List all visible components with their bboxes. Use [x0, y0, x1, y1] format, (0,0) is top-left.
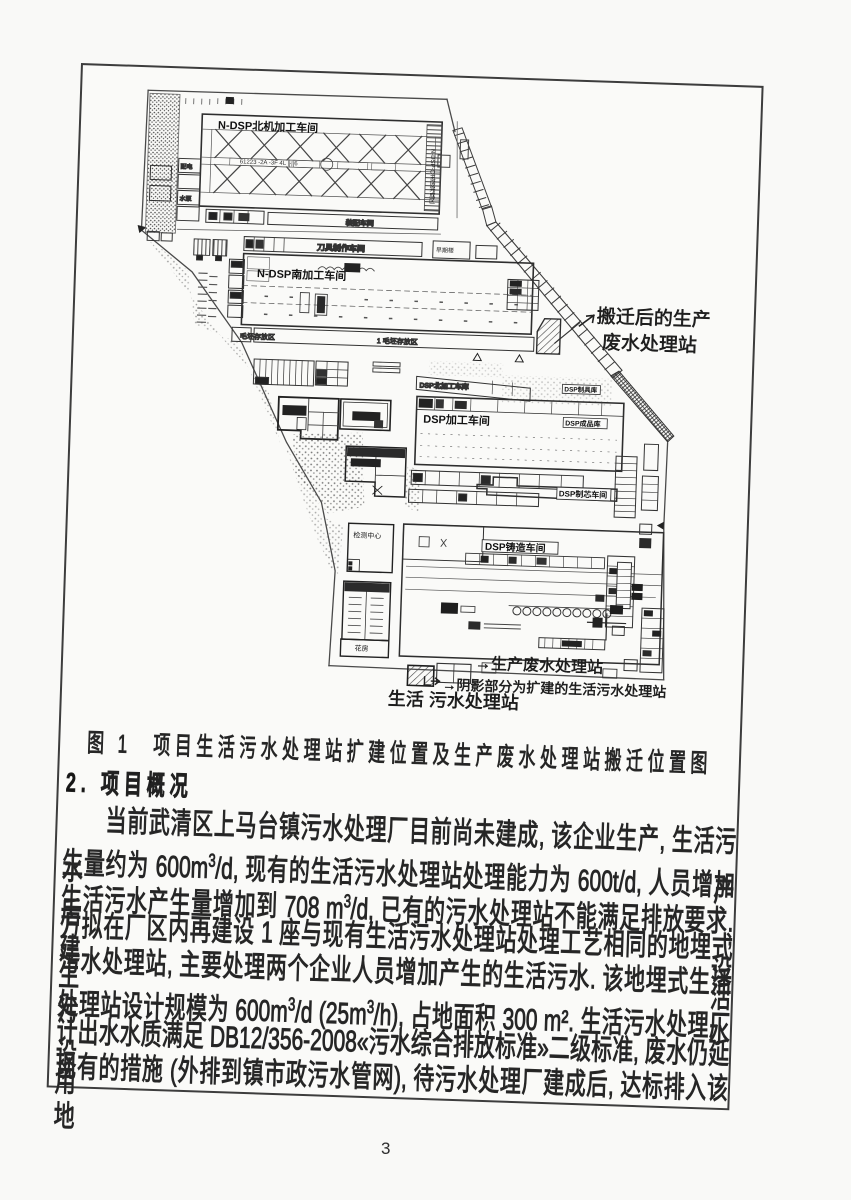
- svg-text:DSP北加工车库: DSP北加工车库: [419, 381, 469, 392]
- svg-text:装配车间: 装配车间: [345, 218, 374, 228]
- svg-text:花房: 花房: [354, 643, 368, 652]
- svg-text:DSP加工车间: DSP加工车间: [423, 412, 490, 428]
- svg-text:早期楼: 早期楼: [436, 246, 454, 255]
- svg-text:毛坯存放区: 毛坯存放区: [240, 331, 275, 341]
- svg-text:生活 污水处理站: 生活 污水处理站: [388, 689, 520, 713]
- svg-text:刀具制作车间: 刀具制作车间: [317, 242, 365, 254]
- svg-text:搬迁后的生产: 搬迁后的生产: [596, 305, 711, 331]
- svg-text:检测中心: 检测中心: [353, 530, 381, 540]
- svg-text:配电: 配电: [180, 162, 192, 170]
- svg-text:废水处理站: 废水处理站: [602, 332, 698, 357]
- svg-text:1 毛坯存放区: 1 毛坯存放区: [377, 336, 418, 346]
- svg-text:N-DSP北机加工车间: N-DSP北机加工车间: [218, 118, 319, 135]
- svg-text:DSP制芯车间: DSP制芯车间: [559, 488, 608, 500]
- svg-text:水泵: 水泵: [179, 194, 191, 202]
